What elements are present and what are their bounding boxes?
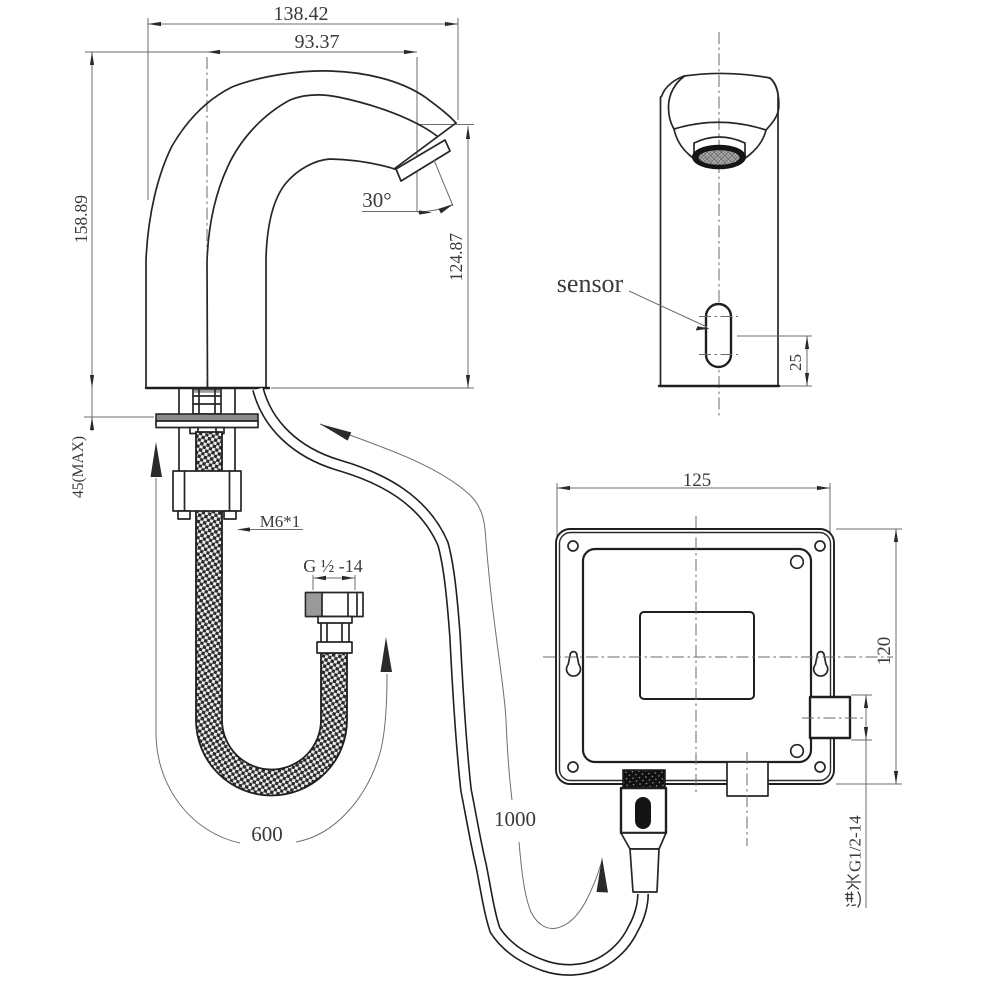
svg-text:G1/2-14: G1/2-14 (846, 815, 865, 872)
svg-text:45(MAX): 45(MAX) (70, 436, 87, 498)
svg-text:30°: 30° (362, 188, 391, 212)
svg-text:124.87: 124.87 (446, 233, 466, 281)
svg-text:M6*1: M6*1 (260, 512, 301, 531)
svg-text:G ½ -14: G ½ -14 (303, 556, 363, 576)
svg-text:sensor: sensor (557, 269, 624, 298)
svg-text:25: 25 (786, 354, 805, 371)
svg-text:120: 120 (874, 637, 895, 666)
svg-text:1000: 1000 (494, 807, 536, 831)
svg-text:158.89: 158.89 (71, 195, 91, 243)
svg-text:600: 600 (251, 822, 283, 846)
svg-text:138.42: 138.42 (274, 3, 329, 25)
svg-text:125: 125 (683, 470, 712, 491)
svg-text:93.37: 93.37 (295, 31, 340, 53)
